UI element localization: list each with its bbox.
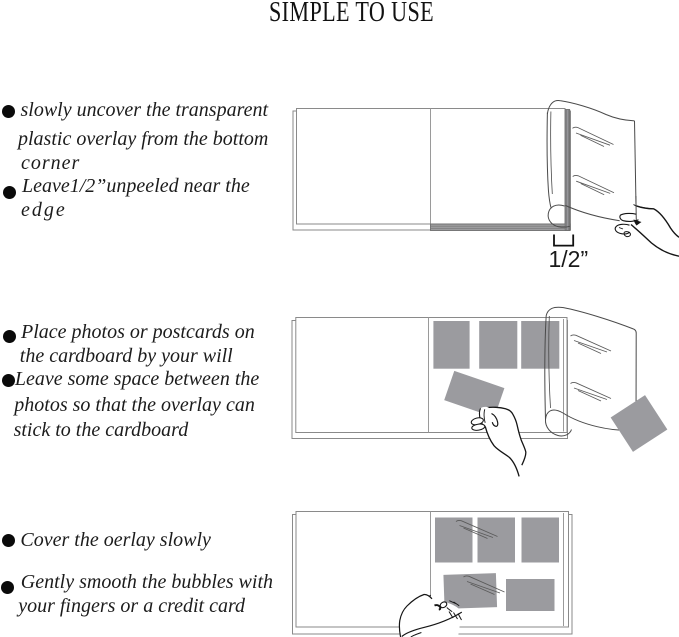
svg-text:1/2”: 1/2” (549, 246, 589, 272)
